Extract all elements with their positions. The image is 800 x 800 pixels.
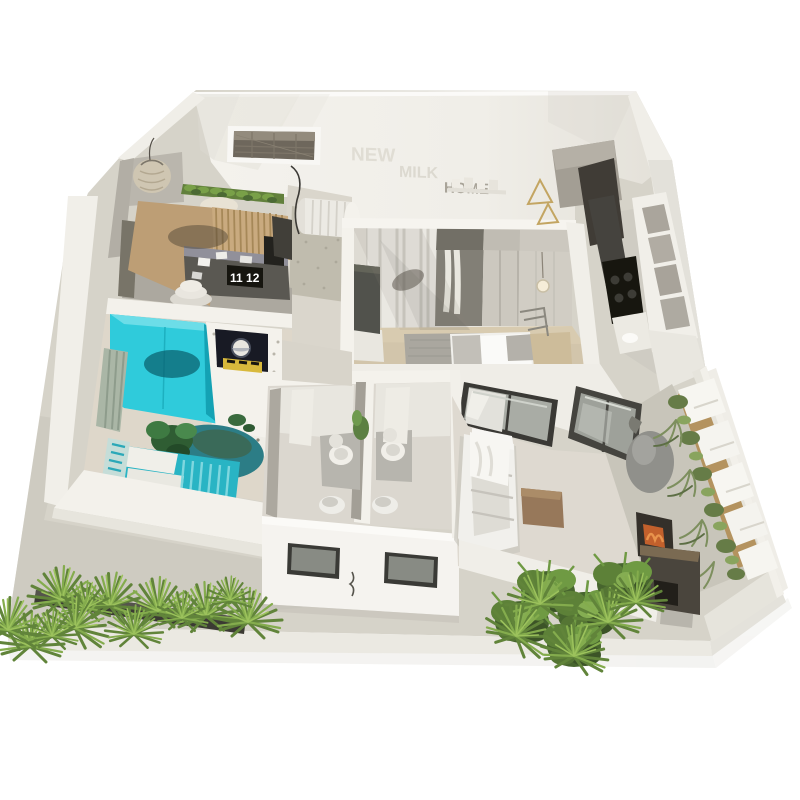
svg-text:NEW: NEW [351, 144, 395, 167]
svg-text:11 12: 11 12 [230, 271, 260, 285]
svg-text:MILK: MILK [399, 164, 439, 182]
